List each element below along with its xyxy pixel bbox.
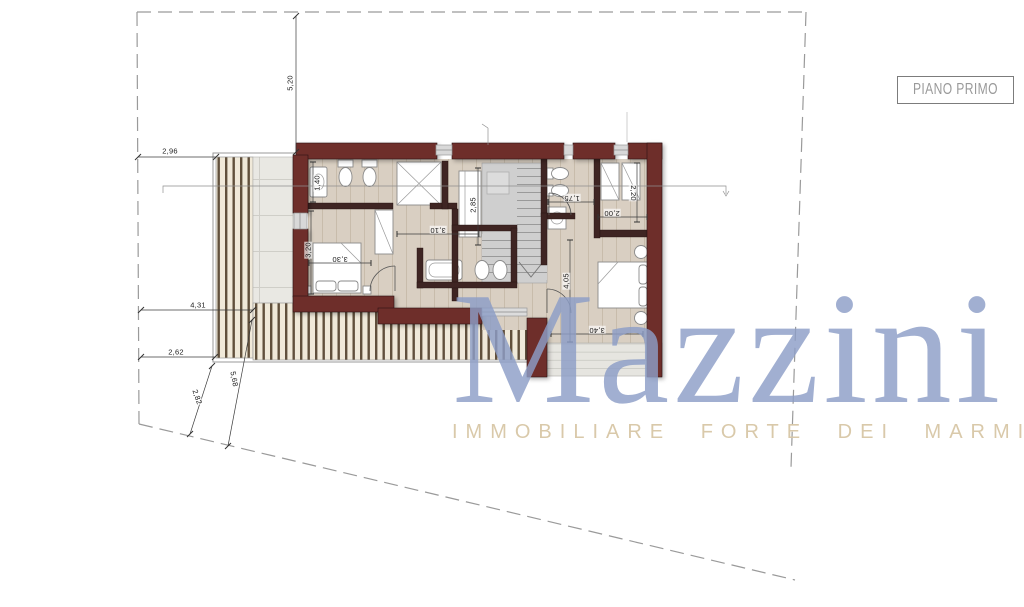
- marble-paving: [253, 157, 293, 305]
- pillow: [338, 281, 358, 291]
- dimension-label: 2,20: [629, 184, 637, 201]
- dimension-label: 1,40: [313, 174, 321, 191]
- stair-landing: [487, 172, 509, 194]
- pergola-slats: [216, 157, 253, 358]
- dimension-label: 2,85: [469, 196, 477, 213]
- floor-plan-canvas: 5,202,964,312,622,825,681,403,203,303,10…: [0, 0, 1024, 607]
- watermark-tagline: IMMOBILIARE FORTE DEI MARMI: [452, 421, 1022, 444]
- watermark-brand: Mazzini: [452, 268, 1017, 428]
- pillow: [316, 281, 336, 291]
- dimension-label: 5,20: [286, 74, 294, 91]
- dimension-label: 4,31: [189, 301, 206, 309]
- bidet: [362, 160, 377, 167]
- level-marker: [482, 124, 488, 145]
- plan-title-box: PIANO PRIMO: [897, 76, 1014, 104]
- dimension-label: 1,75: [563, 194, 580, 202]
- toilet-bowl: [339, 168, 352, 187]
- bidet-bowl: [363, 168, 376, 187]
- toilet-bowl: [552, 168, 569, 180]
- dimension-label: 3,20: [304, 241, 312, 258]
- dimension-label: 2,62: [167, 348, 184, 356]
- dimension-label: 2,96: [161, 147, 178, 155]
- dimension-label: 2,00: [603, 209, 620, 217]
- toilet: [338, 160, 353, 167]
- dimension-label: 5,68: [229, 370, 240, 389]
- nightstand: [635, 246, 648, 259]
- window: [564, 145, 573, 155]
- dimension-label: 3,10: [429, 226, 446, 234]
- window: [294, 213, 307, 229]
- bed-left: [303, 243, 371, 294]
- dimension-label: 3,30: [331, 255, 348, 263]
- plan-title: PIANO PRIMO: [913, 81, 998, 99]
